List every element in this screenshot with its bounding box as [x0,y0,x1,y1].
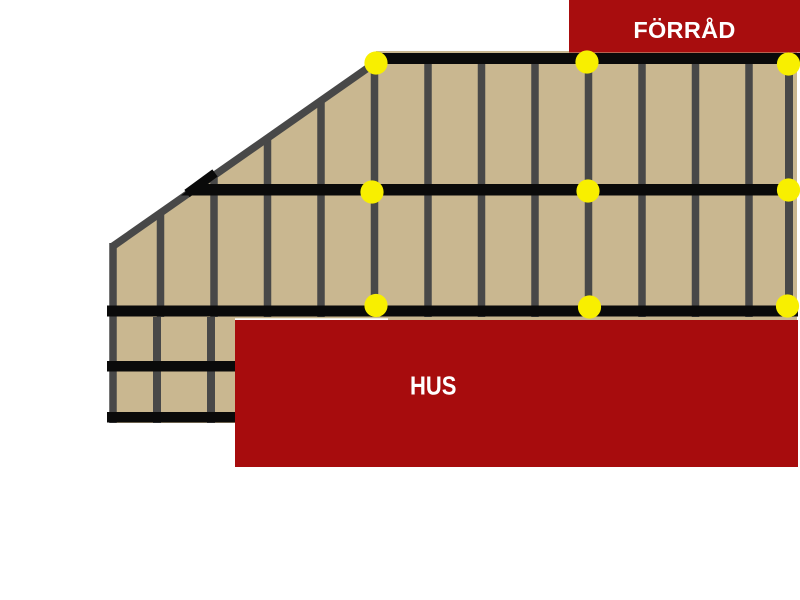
svg-text:FÖRRÅD: FÖRRÅD [633,16,735,43]
svg-text:HUS: HUS [410,371,457,401]
